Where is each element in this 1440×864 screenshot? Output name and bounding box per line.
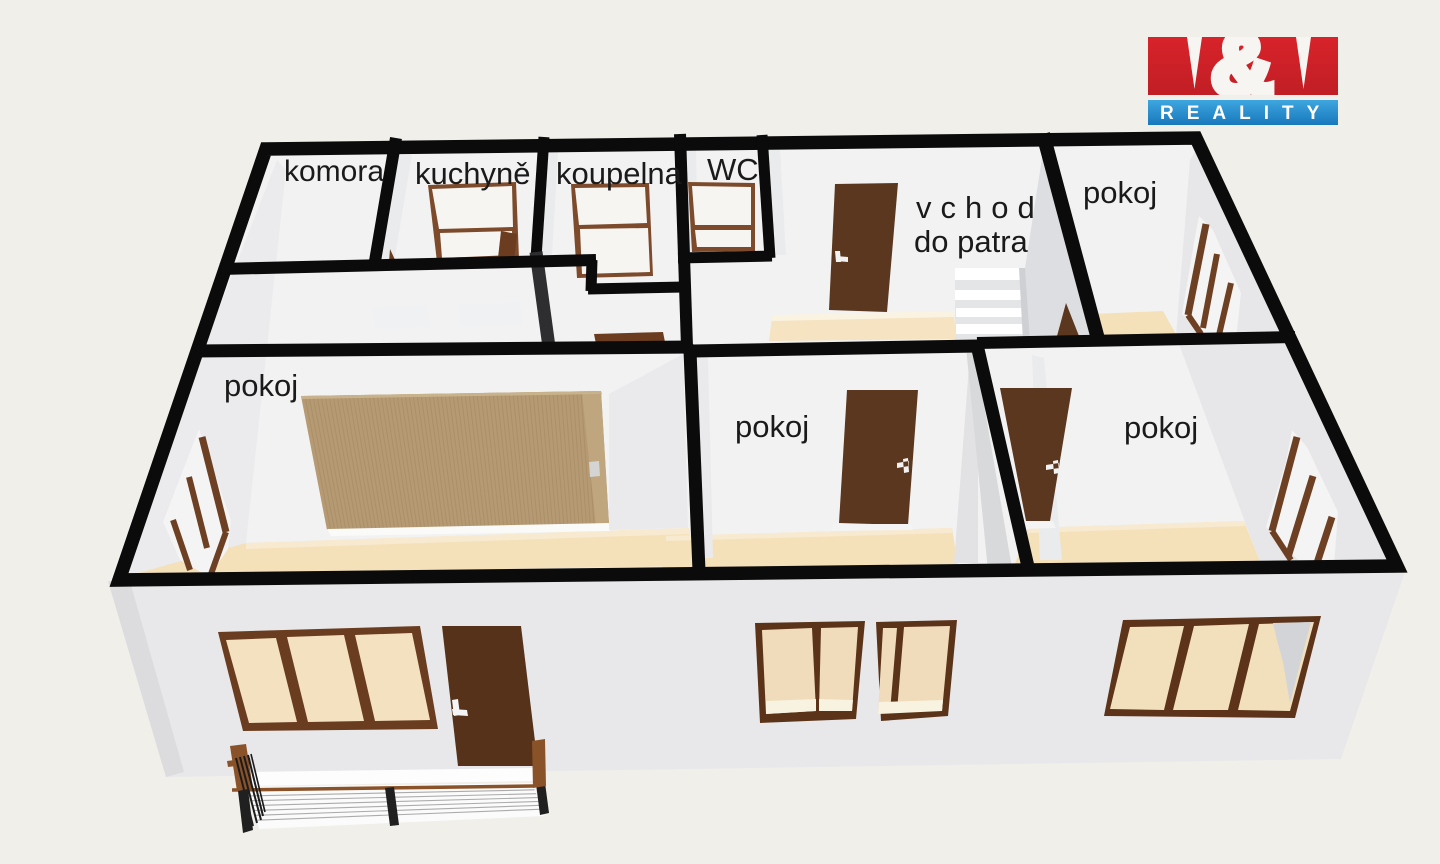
svg-text:pokoj: pokoj: [1124, 410, 1198, 445]
svg-text:pokoj: pokoj: [735, 409, 809, 444]
svg-text:koupelna: koupelna: [556, 156, 683, 191]
svg-text:pokoj: pokoj: [1083, 175, 1157, 210]
svg-text:pokoj: pokoj: [224, 368, 298, 403]
svg-text:REALITY: REALITY: [1160, 103, 1332, 124]
svg-text:do patra: do patra: [914, 224, 1029, 259]
svg-text:komora: komora: [284, 155, 384, 188]
svg-text:kuchyně: kuchyně: [415, 156, 530, 191]
svg-text:WC: WC: [707, 152, 759, 187]
svg-text:vchod: vchod: [916, 190, 1044, 225]
